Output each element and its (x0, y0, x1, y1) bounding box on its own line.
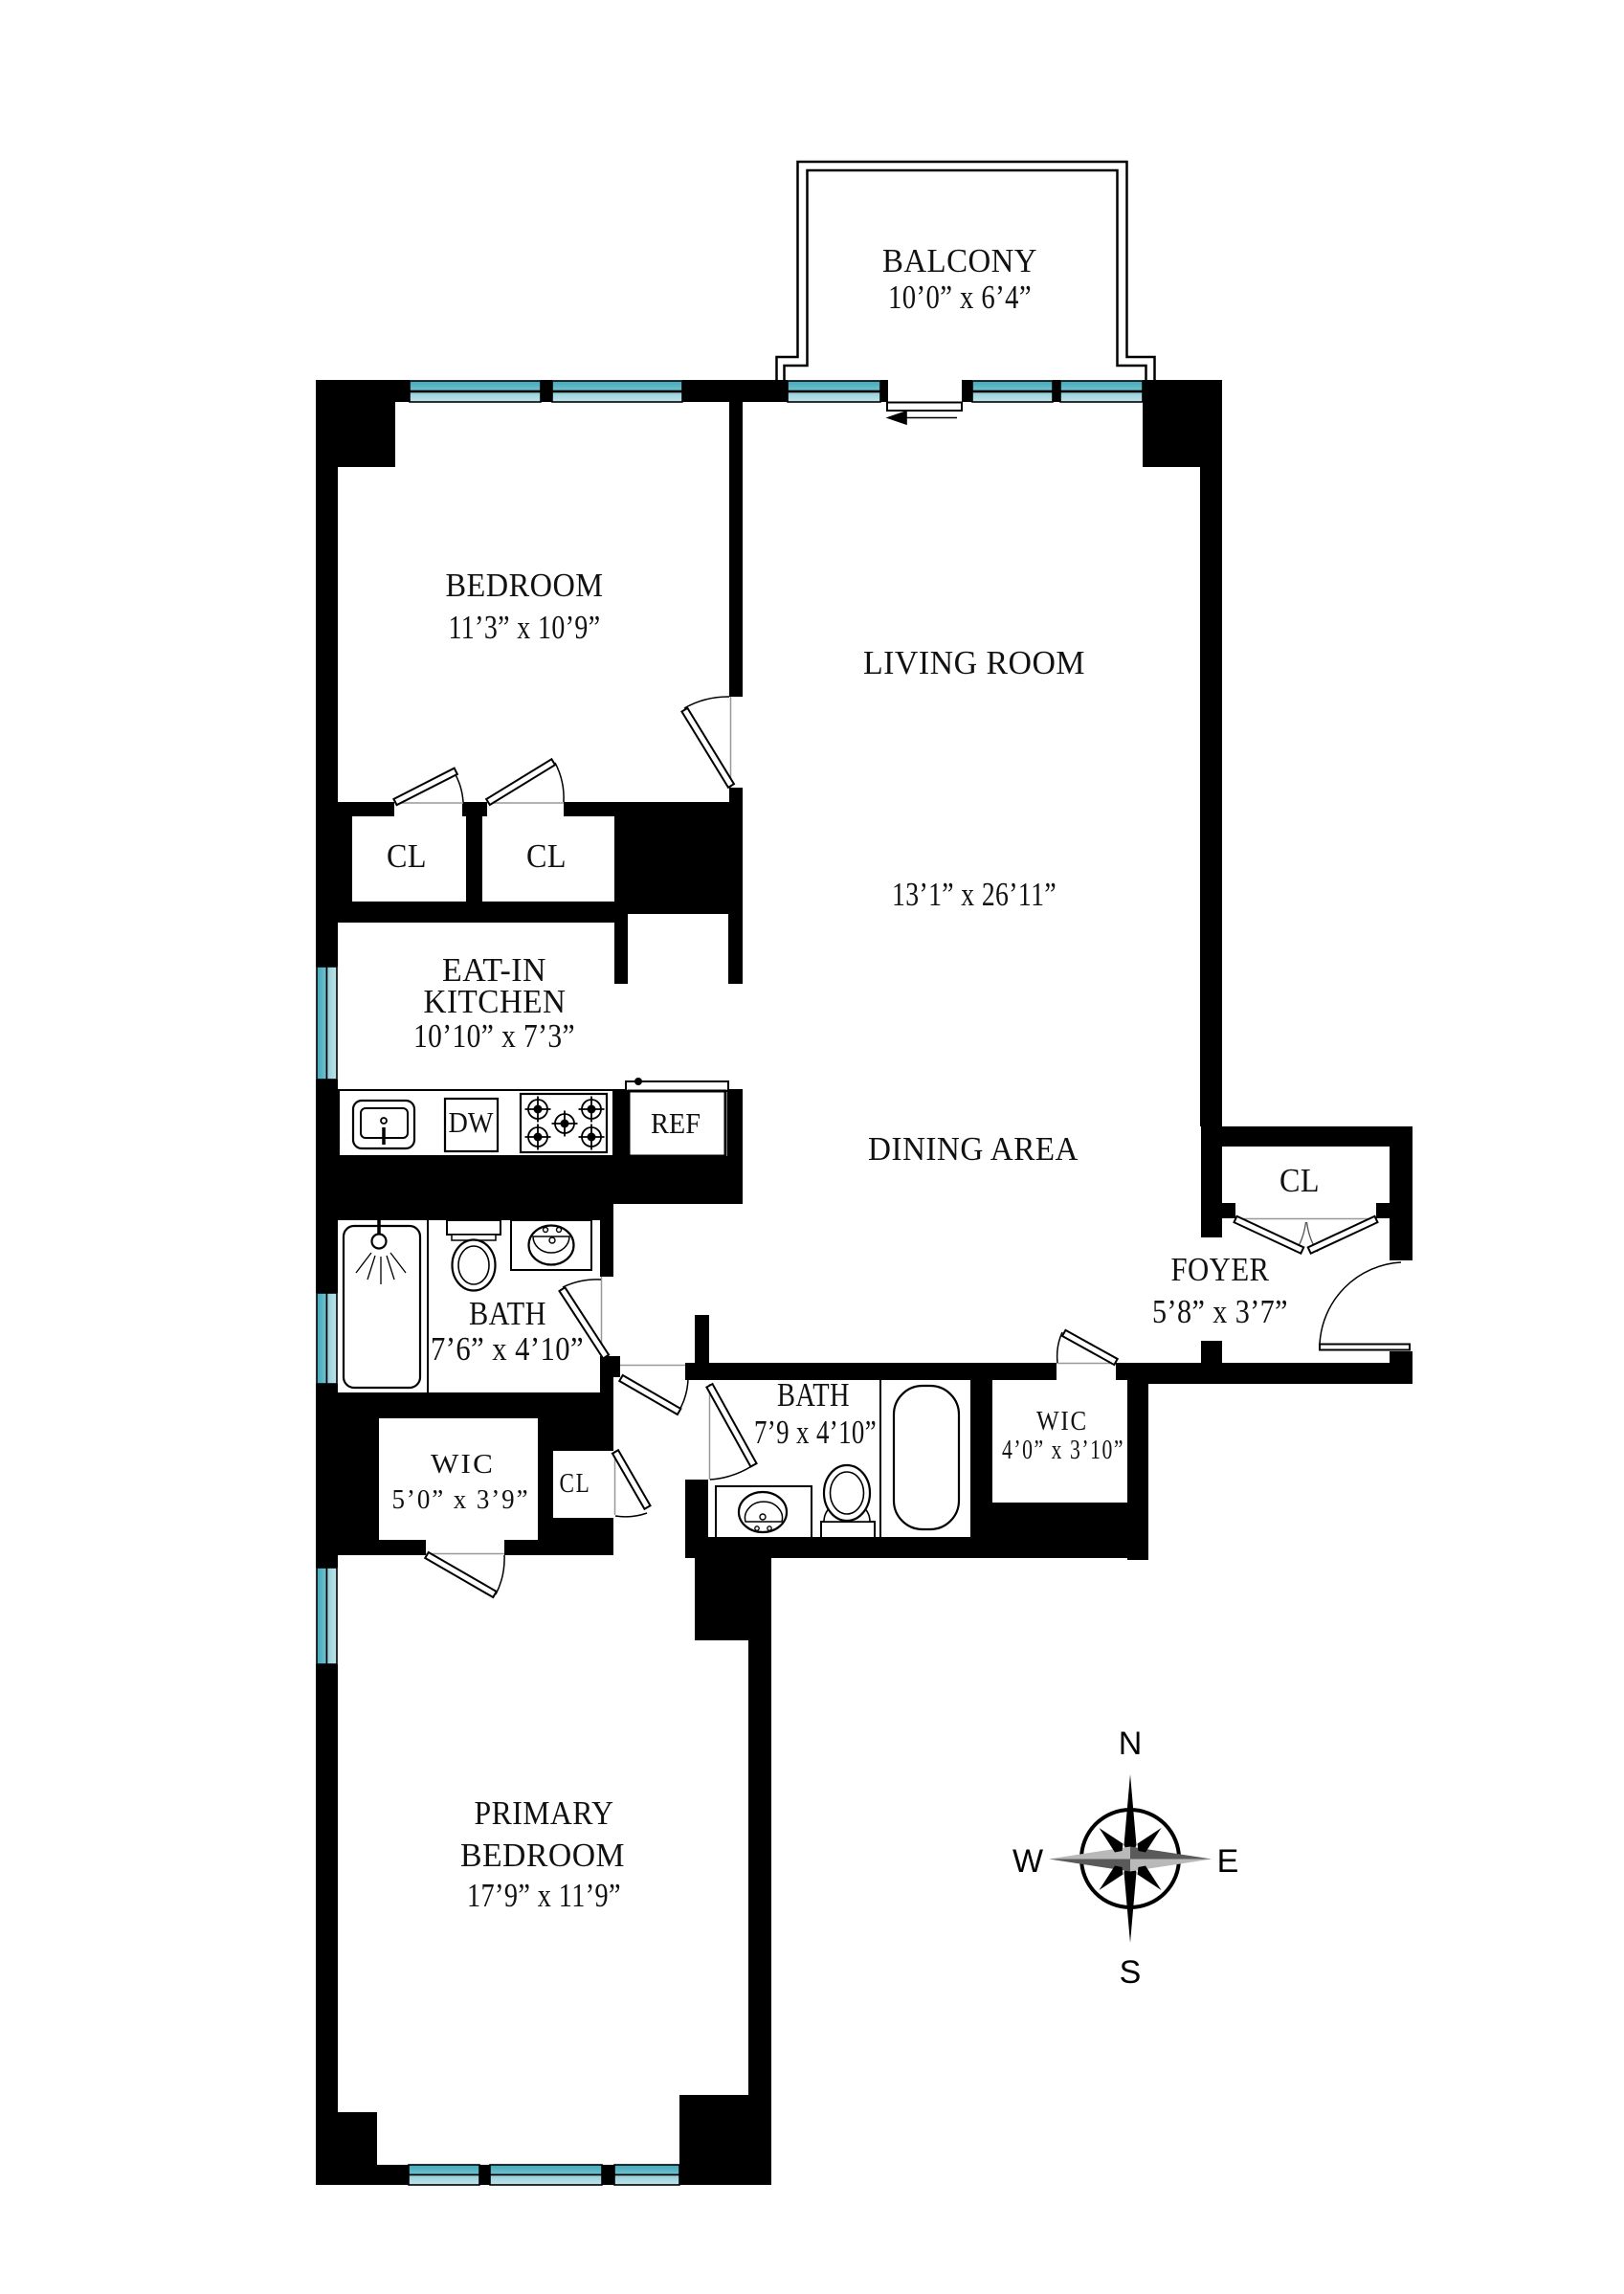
svg-text:5’8” x 3’7”: 5’8” x 3’7” (1152, 1293, 1288, 1330)
svg-text:N: N (1119, 1726, 1143, 1762)
svg-text:7’6” x 4’10”: 7’6” x 4’10” (431, 1330, 584, 1368)
svg-text:BATH: BATH (469, 1295, 546, 1332)
svg-text:DW: DW (449, 1105, 495, 1139)
svg-text:BALCONY: BALCONY (882, 242, 1037, 279)
svg-text:BEDROOM: BEDROOM (446, 567, 604, 604)
svg-text:BATH: BATH (777, 1376, 850, 1414)
svg-text:FOYER: FOYER (1171, 1251, 1270, 1288)
svg-text:BEDROOM: BEDROOM (460, 1837, 625, 1874)
svg-text:REF: REF (651, 1106, 701, 1140)
svg-text:LIVING ROOM: LIVING ROOM (863, 644, 1085, 681)
svg-text:KITCHEN: KITCHEN (424, 983, 567, 1020)
svg-text:PRIMARY: PRIMARY (475, 1794, 614, 1832)
svg-text:CL: CL (387, 837, 427, 875)
svg-text:CL: CL (1279, 1162, 1320, 1199)
svg-text:10’0” x 6’4”: 10’0” x 6’4” (888, 278, 1032, 316)
svg-text:WIC: WIC (431, 1450, 495, 1480)
svg-text:E: E (1217, 1843, 1239, 1880)
svg-text:S: S (1120, 1954, 1142, 1991)
svg-text:11’3” x 10’9”: 11’3” x 10’9” (449, 609, 601, 646)
svg-text:CL: CL (526, 837, 567, 875)
svg-text:13’1” x 26’11”: 13’1” x 26’11” (892, 876, 1057, 913)
svg-text:DINING AREA: DINING AREA (868, 1130, 1079, 1168)
svg-text:5’0” x 3’9”: 5’0” x 3’9” (392, 1485, 530, 1515)
svg-text:7’9 x 4’10”: 7’9 x 4’10” (754, 1414, 877, 1451)
svg-text:17’9” x 11’9”: 17’9” x 11’9” (467, 1877, 621, 1914)
svg-text:10’10” x 7’3”: 10’10” x 7’3” (413, 1017, 575, 1055)
svg-text:WIC: WIC (1036, 1407, 1088, 1437)
svg-text:CL: CL (560, 1469, 591, 1499)
svg-text:4’0” x 3’10”: 4’0” x 3’10” (1002, 1436, 1124, 1465)
svg-text:W: W (1012, 1843, 1043, 1880)
